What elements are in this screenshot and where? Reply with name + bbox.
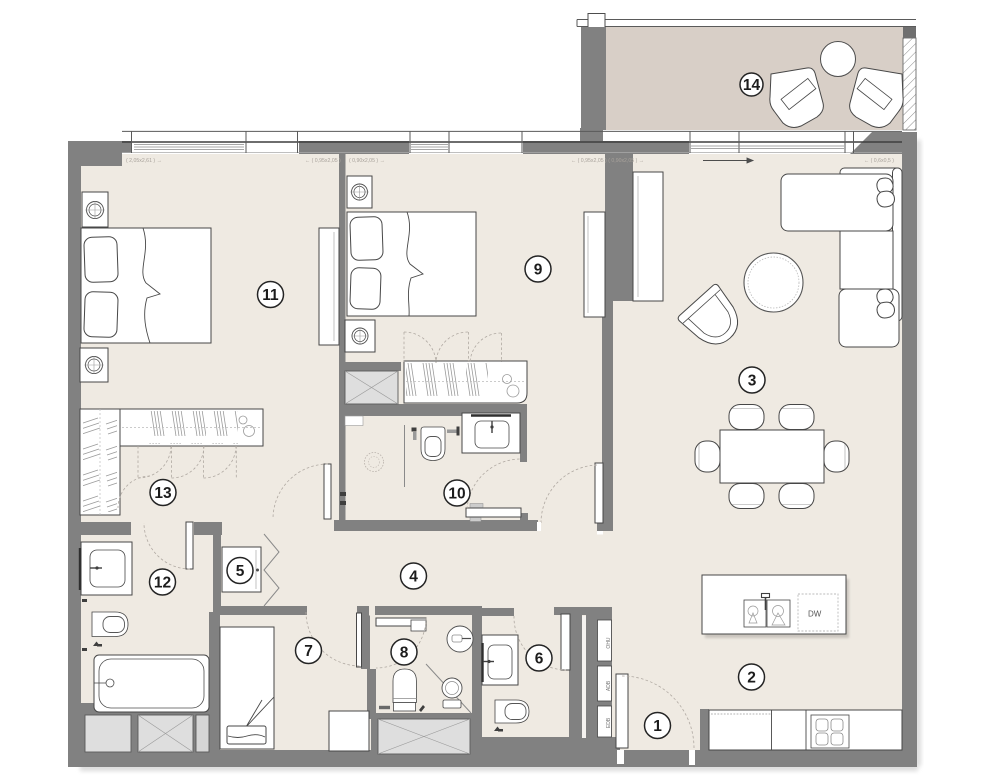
- svg-text:( 2,05x2,61 ) →: ( 2,05x2,61 ) →: [126, 158, 162, 164]
- svg-text:3: 3: [748, 373, 757, 390]
- svg-text:4: 4: [409, 569, 418, 586]
- svg-text:13: 13: [154, 485, 172, 502]
- svg-text:DW: DW: [808, 610, 822, 619]
- svg-text:← ( 0,6x0,5 ): ← ( 0,6x0,5 ): [864, 158, 894, 164]
- svg-text:← ( 0,95x2,05 ) ( 0,90x2,05 ): ← ( 0,95x2,05 ) ( 0,90x2,05 ) →: [571, 158, 644, 164]
- svg-text:1: 1: [653, 718, 662, 735]
- svg-text:OHU: OHU: [606, 637, 612, 649]
- svg-text:7: 7: [304, 643, 313, 660]
- svg-text:ADB: ADB: [606, 680, 612, 691]
- svg-text:9: 9: [534, 262, 543, 279]
- svg-text:5: 5: [236, 563, 245, 580]
- svg-text:( 0,90x2,05 ) →: ( 0,90x2,05 ) →: [349, 158, 385, 164]
- svg-text:12: 12: [154, 575, 171, 592]
- svg-text:← ( 0,95x2,05 ): ← ( 0,95x2,05 ): [305, 158, 341, 164]
- svg-text:11: 11: [262, 287, 279, 304]
- svg-text:8: 8: [400, 645, 409, 662]
- svg-text:14: 14: [743, 77, 761, 94]
- svg-text:2: 2: [747, 670, 756, 687]
- svg-text:EDB: EDB: [606, 717, 612, 728]
- svg-text:10: 10: [448, 486, 465, 503]
- svg-text:6: 6: [535, 651, 544, 668]
